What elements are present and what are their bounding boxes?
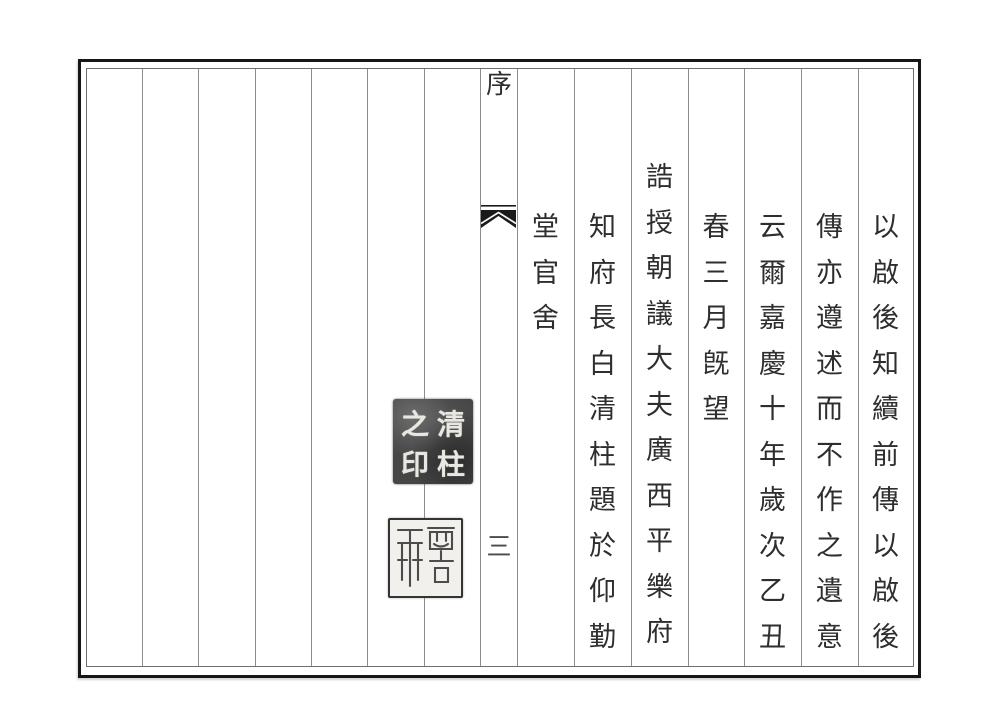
- glyph: 於: [581, 531, 625, 577]
- text-column: 云爾嘉慶十年歲次乙丑: [751, 212, 795, 667]
- glyph: 題: [581, 485, 625, 531]
- book-page: 序 三 以啟後知續前傳以啟後傳亦遵述而不作之遺意云爾嘉慶十年歲次乙丑春三月旣望誥…: [0, 0, 1000, 706]
- glyph: 丑: [751, 622, 795, 668]
- glyph: 堂: [524, 212, 568, 258]
- column-rule: [744, 69, 745, 666]
- column-rule: [574, 69, 575, 666]
- glyph: 知: [581, 212, 625, 258]
- glyph: 朝: [638, 253, 682, 299]
- glyph: 啟: [864, 576, 908, 622]
- glyph: 三: [694, 258, 738, 304]
- text-column: 春三月旣望: [694, 212, 738, 440]
- glyph: 西: [638, 481, 682, 527]
- text-column: 知府長白清柱題於仰勤: [581, 212, 625, 667]
- glyph: 仰: [581, 576, 625, 622]
- column-rule: [311, 69, 312, 666]
- glyph: 夫: [638, 390, 682, 436]
- fishtail-icon: [481, 204, 516, 230]
- glyph: 而: [808, 394, 852, 440]
- column-rule: [255, 69, 256, 666]
- glyph: 白: [581, 349, 625, 395]
- text-column: 以啟後知續前傳以啟後: [864, 212, 908, 667]
- glyph: 亦: [808, 258, 852, 304]
- glyph: 柱: [581, 440, 625, 486]
- glyph: 樂: [638, 572, 682, 618]
- column-rule: [631, 69, 632, 666]
- seal-char-bottom-left: 印: [397, 443, 433, 483]
- glyph: 平: [638, 526, 682, 572]
- glyph: 傳: [808, 212, 852, 258]
- glyph: 乙: [751, 576, 795, 622]
- glyph: 不: [808, 440, 852, 486]
- glyph: 啟: [864, 258, 908, 304]
- glyph: 授: [638, 208, 682, 254]
- glyph: 知: [864, 349, 908, 395]
- column-rule: [367, 69, 368, 666]
- glyph: 慶: [751, 349, 795, 395]
- glyph: 誥: [638, 162, 682, 208]
- glyph: 前: [864, 440, 908, 486]
- seal-char-top-right: 清: [433, 403, 469, 443]
- glyph: 嘉: [751, 303, 795, 349]
- glyph: 遵: [808, 303, 852, 349]
- glyph: 歲: [751, 485, 795, 531]
- glyph: 次: [751, 531, 795, 577]
- glyph: 之: [808, 531, 852, 577]
- seal-qingzhu-zhiyin: 之 清 印 柱: [393, 399, 473, 484]
- column-rule: [480, 69, 481, 666]
- banxin-page-number: 三: [481, 527, 517, 563]
- column-rule: [858, 69, 859, 666]
- glyph: 年: [751, 440, 795, 486]
- seal-script-strokes: [390, 520, 461, 596]
- glyph: 述: [808, 349, 852, 395]
- glyph: 爾: [751, 258, 795, 304]
- column-rule: [517, 69, 518, 666]
- banxin-section-title: 序: [481, 64, 517, 101]
- glyph: 云: [751, 212, 795, 258]
- glyph: 大: [638, 344, 682, 390]
- glyph: 旣: [694, 349, 738, 395]
- text-column: 傳亦遵述而不作之遺意: [808, 212, 852, 667]
- glyph: 官: [524, 258, 568, 304]
- glyph: 後: [864, 622, 908, 668]
- glyph: 府: [581, 258, 625, 304]
- glyph: 意: [808, 622, 852, 668]
- seal-char-top-left: 之: [397, 403, 433, 443]
- glyph: 廣: [638, 435, 682, 481]
- glyph: 府: [638, 617, 682, 663]
- glyph: 春: [694, 212, 738, 258]
- glyph: 以: [864, 212, 908, 258]
- column-rule: [198, 69, 199, 666]
- glyph: 勤: [581, 622, 625, 668]
- glyph: 舍: [524, 303, 568, 349]
- glyph: 遺: [808, 576, 852, 622]
- glyph: 長: [581, 303, 625, 349]
- glyph: 後: [864, 303, 908, 349]
- glyph: 月: [694, 303, 738, 349]
- column-rule: [688, 69, 689, 666]
- glyph: 十: [751, 394, 795, 440]
- glyph: 清: [581, 394, 625, 440]
- seal-char-bottom-right: 柱: [433, 443, 469, 483]
- glyph: 以: [864, 531, 908, 577]
- glyph: 作: [808, 485, 852, 531]
- glyph: 傳: [864, 485, 908, 531]
- text-column: 誥授朝議大夫廣西平樂府: [638, 162, 682, 663]
- column-rule: [801, 69, 802, 666]
- glyph: 議: [638, 299, 682, 345]
- glyph: 望: [694, 394, 738, 440]
- text-column: 堂官舍: [524, 212, 568, 349]
- column-rule: [142, 69, 143, 666]
- glyph: 續: [864, 394, 908, 440]
- seal-undeciphered: [388, 518, 463, 598]
